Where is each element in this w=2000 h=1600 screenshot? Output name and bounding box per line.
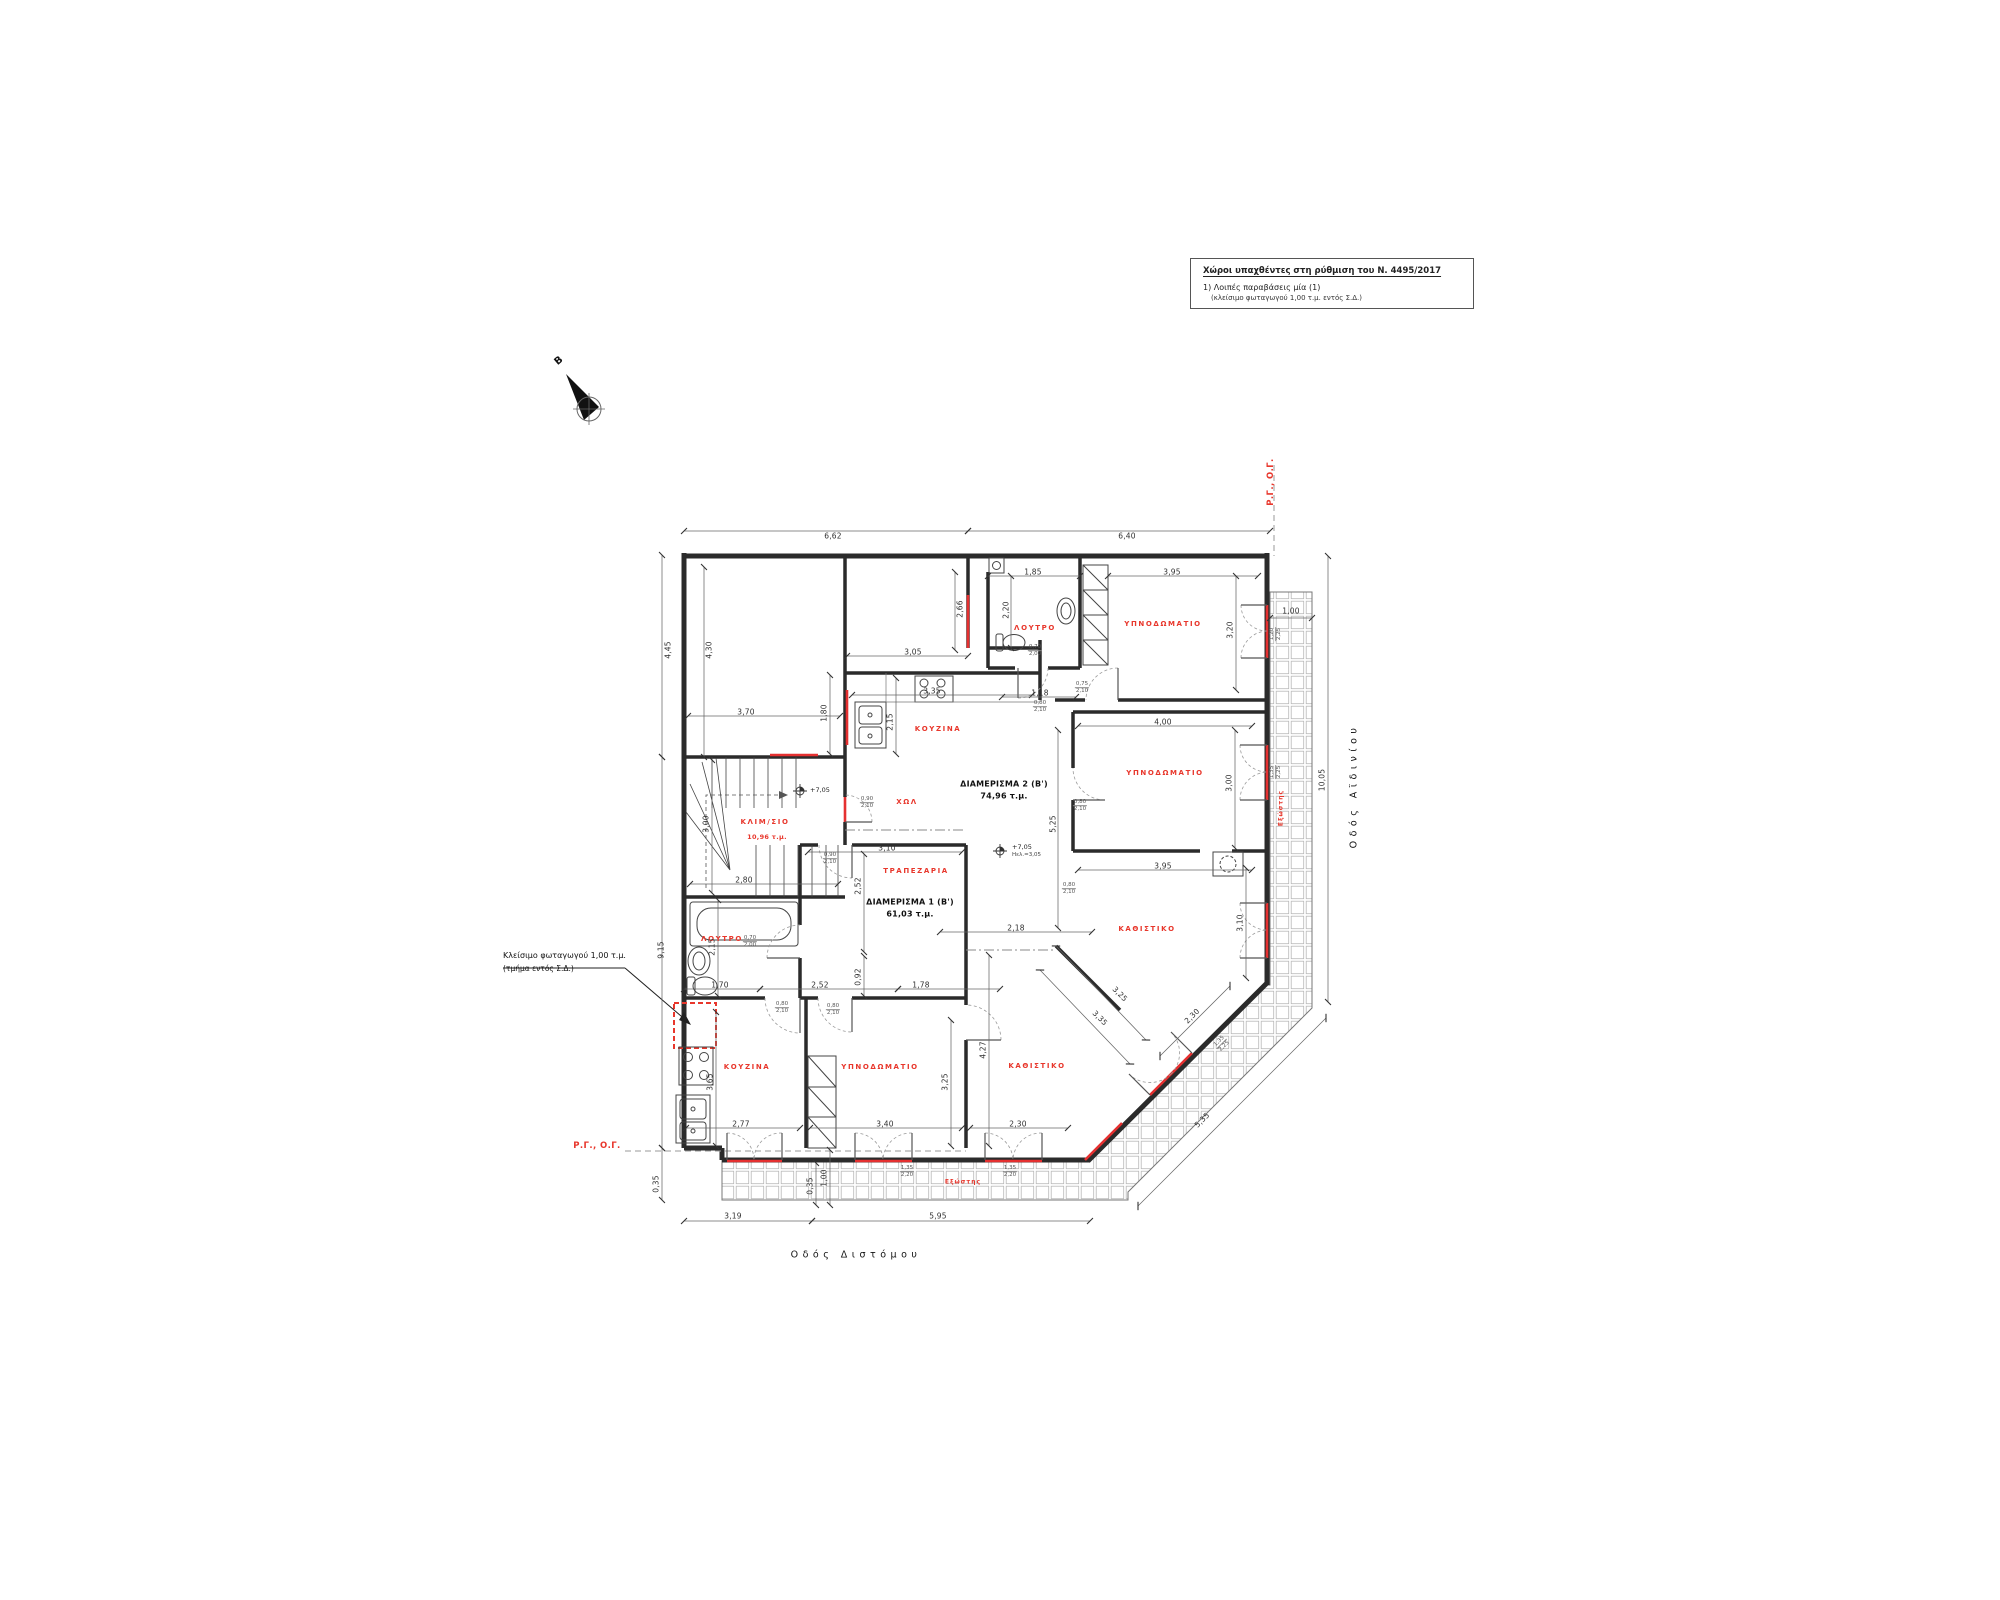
dimension-label: 9,15	[657, 941, 666, 959]
opening-size-label: 0,702,00	[743, 935, 757, 949]
dimension-label: 3,00	[702, 815, 711, 833]
dimension-label: 0,92	[854, 968, 863, 986]
opening-size-label: 0,752,10	[1075, 681, 1089, 695]
wardrobe	[1083, 565, 1108, 665]
balcony-label: Εξώστης	[1278, 790, 1285, 826]
opening-size-label: 0,902,10	[823, 852, 837, 866]
opening-size-label: 0,802,10	[775, 1001, 789, 1015]
callout-line: Κλείσιμο φωταγωγού 1,00 τ.μ.	[503, 951, 626, 960]
dimension-label: 1,85	[1024, 568, 1042, 577]
dimension-label: 3,95	[1163, 568, 1181, 577]
dimension-label: 5,95	[929, 1212, 947, 1221]
dimension-label: 6,40	[1118, 532, 1136, 541]
dimension-label: 3,70	[737, 708, 755, 717]
dimension-label: 3,05	[904, 648, 922, 657]
street-name-right: Οδός Αϊδινίου	[1349, 724, 1360, 849]
level-marker-icon	[793, 784, 1007, 858]
opening-size-label: 1,202,25	[1269, 627, 1283, 641]
opening-size-label: 0,802,10	[1033, 700, 1047, 714]
room-label: ΚΑΘΙΣΤΙΚΟ	[1118, 925, 1175, 933]
dimension-label: 3,19	[724, 1212, 742, 1221]
dimension-label: 3,20	[1226, 621, 1235, 639]
kitchen-sink	[855, 702, 886, 748]
dimension-label: 3,95	[1154, 862, 1172, 871]
callout-arrow	[503, 968, 691, 1025]
apartment-label: ΔΙΑΜΕΡΙΣΜΑ 2 (Β')	[960, 780, 1048, 789]
room-label: ΚΟΥΖΙΝΑ	[724, 1063, 771, 1071]
dimension-label: 4,00	[1154, 718, 1172, 727]
washing-machine	[989, 558, 1004, 573]
dimension-label: 4,27	[979, 1041, 988, 1059]
room-label: ΚΟΥΖΙΝΑ	[915, 725, 962, 733]
dimension-label: 3,00	[1225, 774, 1234, 792]
opening-size-label: 0,802,10	[1073, 799, 1087, 813]
dimension-label: 6,62	[824, 532, 842, 541]
room-label: ΤΡΑΠΕΖΑΡΙΑ	[883, 867, 949, 875]
boiler-closet	[1213, 852, 1243, 876]
room-label: ΚΑΘΙΣΤΙΚΟ	[1008, 1062, 1065, 1070]
regulation-marker: Ρ.Γ., Ο.Γ.	[573, 1141, 620, 1151]
room-label: ΥΠΝΟΔΩΜΑΤΙΟ	[1124, 620, 1201, 628]
room-label: ΥΠΝΟΔΩΜΑΤΙΟ	[1126, 769, 1203, 777]
dimension-label: 3,65	[706, 1073, 715, 1091]
dimension-label: 1,18	[1031, 689, 1049, 698]
opening-size-label: 1,352,20	[1003, 1165, 1017, 1179]
dimension-label: 2,30	[1009, 1120, 1027, 1129]
light-well-callout: Κλείσιμο φωταγωγού 1,00 τ.μ. (τμήμα εντό…	[503, 951, 626, 973]
opening-size-label: 0,802,10	[826, 1003, 840, 1017]
dimension-label: 3,10	[878, 844, 896, 853]
dimension-label: 2,20	[1002, 601, 1011, 619]
legend-title: Χώροι υπαχθέντες στη ρύθμιση του Ν. 4495…	[1203, 266, 1465, 276]
legend-box: Χώροι υπαχθέντες στη ρύθμιση του Ν. 4495…	[1190, 258, 1474, 309]
dimension-label: 3,10	[1236, 914, 1245, 932]
dimension-label: 2,77	[732, 1120, 750, 1129]
apartment-area: 61,03 τ.μ.	[886, 910, 933, 919]
wardrobe	[808, 1056, 836, 1148]
dimension-label: 3,40	[876, 1120, 894, 1129]
dimension-label: 2,52	[811, 981, 829, 990]
toilet	[687, 977, 695, 995]
level-marker: +7,05Ηελ.=3,05	[1012, 844, 1041, 858]
dimension-label: 1,00	[820, 1169, 829, 1187]
interior-walls	[684, 556, 1267, 1148]
opening-size-label: 1,352,25	[1269, 765, 1283, 779]
dimension-label: 2,80	[735, 876, 753, 885]
legend-item: (κλείσιμο φωταγωγού 1,00 τ.μ. εντός Σ.Δ.…	[1211, 294, 1465, 302]
dimension-label: 2,15	[886, 713, 895, 731]
legend-item: 1) Λοιπές παραβάσεις μία (1)	[1203, 283, 1465, 292]
dimension-label: 2,66	[956, 600, 965, 618]
light-well-closure	[674, 1003, 716, 1048]
room-label: ΥΠΝΟΔΩΜΑΤΙΟ	[841, 1063, 918, 1071]
opening-size-label: 0,902,10	[860, 796, 874, 810]
opening-size-label: 1,352,20	[900, 1165, 914, 1179]
dimension-label: 4,45	[664, 641, 673, 659]
dimension-label: 1,78	[912, 981, 930, 990]
exterior-walls	[684, 553, 1267, 1161]
sink	[1057, 598, 1075, 624]
stairwell-label: ΚΛΙΜ/ΣΙΟ	[740, 818, 789, 826]
fixtures	[676, 558, 1243, 1148]
callout-line: (τμήμα εντός Σ.Δ.)	[503, 964, 626, 973]
room-label: ΛΟΥΤΡΟ	[1014, 624, 1056, 632]
stairwell-area: 10,96 τ.μ.	[747, 833, 787, 841]
apartment-label: ΔΙΑΜΕΡΙΣΜΑ 1 (Β')	[866, 898, 954, 907]
dimension-label: 2,52	[854, 877, 863, 895]
dimension-label: 2,15	[708, 938, 717, 956]
north-arrow-icon	[566, 374, 605, 425]
dimension-label: 10,05	[1318, 769, 1327, 791]
dimension-label: 5,25	[1049, 815, 1058, 833]
dimension-label: 2,18	[1007, 924, 1025, 933]
street-name-bottom: Οδός Διστόμου	[791, 1250, 922, 1261]
dimension-label: 4,30	[705, 641, 714, 659]
room-label: ΧΩΛ	[896, 798, 918, 806]
dimension-label: 1,00	[1282, 607, 1300, 616]
floor-plan-sheet: Χώροι υπαχθέντες στη ρύθμιση του Ν. 4495…	[0, 0, 2000, 1600]
dimension-label: 0,35	[652, 1175, 661, 1193]
dimension-label: 1,70	[711, 981, 729, 990]
dimension-label: 3,25	[941, 1073, 950, 1091]
level-marker: +7,05	[810, 787, 830, 795]
dimension-label: 1,80	[820, 704, 829, 722]
balcony-label: Εξώστης	[945, 1179, 981, 1186]
opening-size-label: 0,802,10	[1062, 882, 1076, 896]
dimension-label: 3,35	[923, 687, 941, 696]
opening-size-label: 0,702,00	[1028, 644, 1042, 658]
regulation-marker: Ρ.Γ., Ο.Γ.	[1266, 458, 1276, 505]
dimension-label: 0,35	[806, 1177, 815, 1195]
apartment-area: 74,96 τ.μ.	[980, 792, 1027, 801]
